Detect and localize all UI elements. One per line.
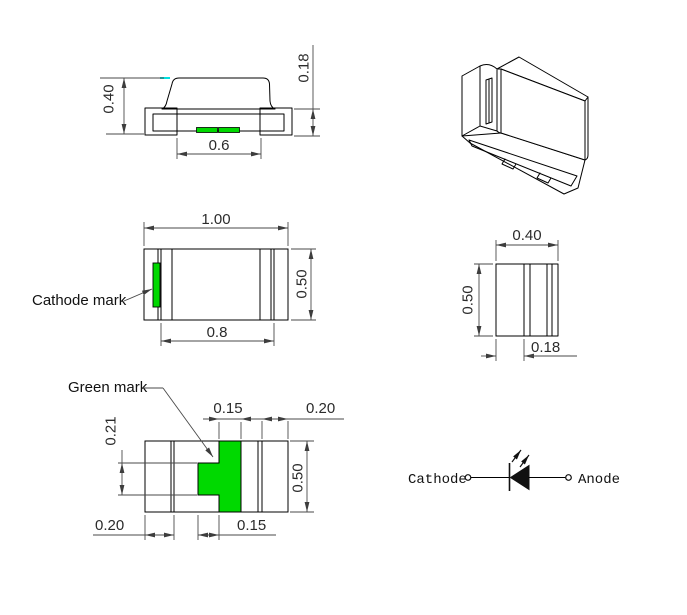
diagram-canvas: 0.40 0.18 0.6 xyxy=(0,0,687,615)
dim-bottom-tab-width: 0.15 xyxy=(198,515,276,540)
drawing-page: 0.40 0.18 0.6 xyxy=(0,0,687,615)
dim-end-terminal: 0.18 xyxy=(481,339,577,361)
dim-bottom-height: 0.50 xyxy=(289,441,314,512)
led-symbol: Cathode Anode xyxy=(408,450,620,491)
dim-top-height: 0.50 xyxy=(291,249,316,320)
cathode-mark-label: Cathode mark xyxy=(32,292,127,309)
cathode-mark xyxy=(153,263,160,307)
dim-top-body: 0.8 xyxy=(161,323,274,346)
cathode-label: Cathode xyxy=(408,472,467,488)
green-bar-left xyxy=(197,128,218,133)
dim-end-width: 0.40 xyxy=(496,227,558,261)
dim-side-terminal: 0.18 xyxy=(294,45,320,136)
dim-text: 0.15 xyxy=(213,400,242,417)
green-mark-label: Green mark xyxy=(68,379,148,396)
dim-text: 0.40 xyxy=(100,84,117,113)
anode-terminal xyxy=(566,475,572,481)
light-emission-arrows xyxy=(512,450,529,467)
dim-side-height: 0.40 xyxy=(100,78,164,134)
anode-label: Anode xyxy=(578,472,620,488)
dim-text: 0.8 xyxy=(207,324,228,341)
bottom-view: Green mark 0.15 0.20 0.21 xyxy=(68,379,344,540)
lens-dome xyxy=(162,78,275,109)
dim-text: 0.40 xyxy=(512,227,541,244)
dim-text: 0.21 xyxy=(102,416,119,445)
dim-text: 0.18 xyxy=(295,53,312,82)
side-view: 0.40 0.18 0.6 xyxy=(100,45,320,159)
dim-text: 0.6 xyxy=(209,137,230,154)
dim-bottom-terminal-right: 0.20 xyxy=(262,400,335,439)
dim-text: 0.18 xyxy=(531,339,560,356)
dim-end-height: 0.50 xyxy=(459,264,493,336)
cathode-terminal xyxy=(465,475,471,481)
dim-side-span: 0.6 xyxy=(177,137,261,159)
dim-bottom-terminal-left: 0.20 xyxy=(93,515,174,540)
package-outline xyxy=(144,249,288,320)
dim-text: 0.20 xyxy=(306,400,335,417)
dim-text: 0.15 xyxy=(237,517,266,534)
green-bar-right xyxy=(219,128,240,133)
dim-text: 0.50 xyxy=(293,269,310,298)
dim-text: 0.20 xyxy=(95,517,124,534)
iso-view xyxy=(462,57,588,194)
diode-triangle xyxy=(511,466,530,490)
iso-terminal-groove xyxy=(486,78,492,124)
top-view: 1.00 0.50 0.8 Cathode mark xyxy=(32,211,316,346)
cathode-mark-callout: Cathode mark xyxy=(32,289,152,309)
dim-text: 1.00 xyxy=(201,211,230,228)
dim-top-width: 1.00 xyxy=(144,211,288,246)
dim-text: 0.50 xyxy=(289,463,306,492)
iso-left-face xyxy=(462,66,480,136)
dim-text: 0.50 xyxy=(459,285,476,314)
end-view: 0.40 0.50 0.18 xyxy=(459,227,577,361)
package-outline xyxy=(496,264,558,336)
